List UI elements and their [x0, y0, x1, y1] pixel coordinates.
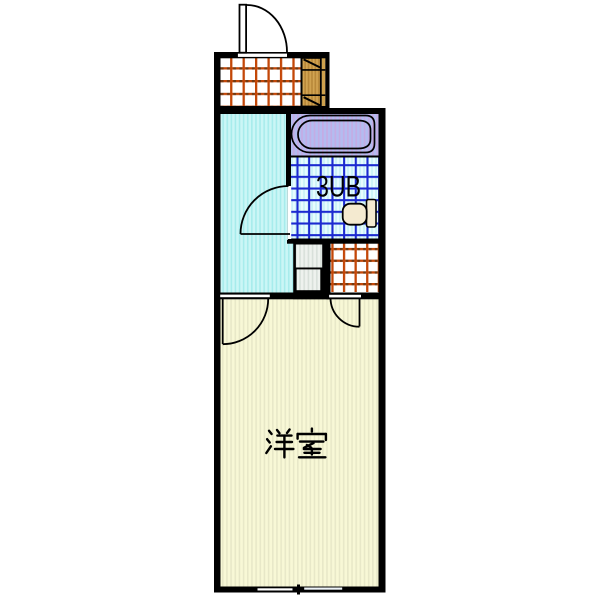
svg-text:3UB: 3UB [316, 170, 361, 203]
